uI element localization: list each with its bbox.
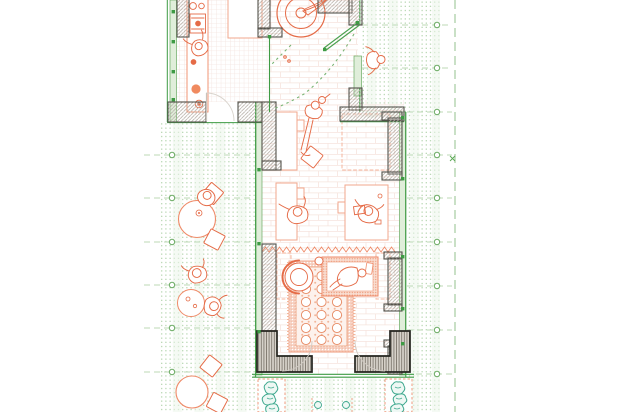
round-table-room-floor	[270, 0, 358, 107]
planter-right	[385, 379, 412, 412]
side-table	[315, 257, 323, 265]
planter-left	[258, 379, 285, 412]
floor-plan-canvas	[0, 0, 618, 412]
terrace-set-2	[178, 290, 205, 317]
site-sprig	[450, 156, 455, 161]
small-plant	[343, 402, 350, 409]
prep-table	[228, 0, 262, 38]
small-plant	[315, 402, 322, 409]
floor-plan-drawing	[0, 0, 618, 412]
